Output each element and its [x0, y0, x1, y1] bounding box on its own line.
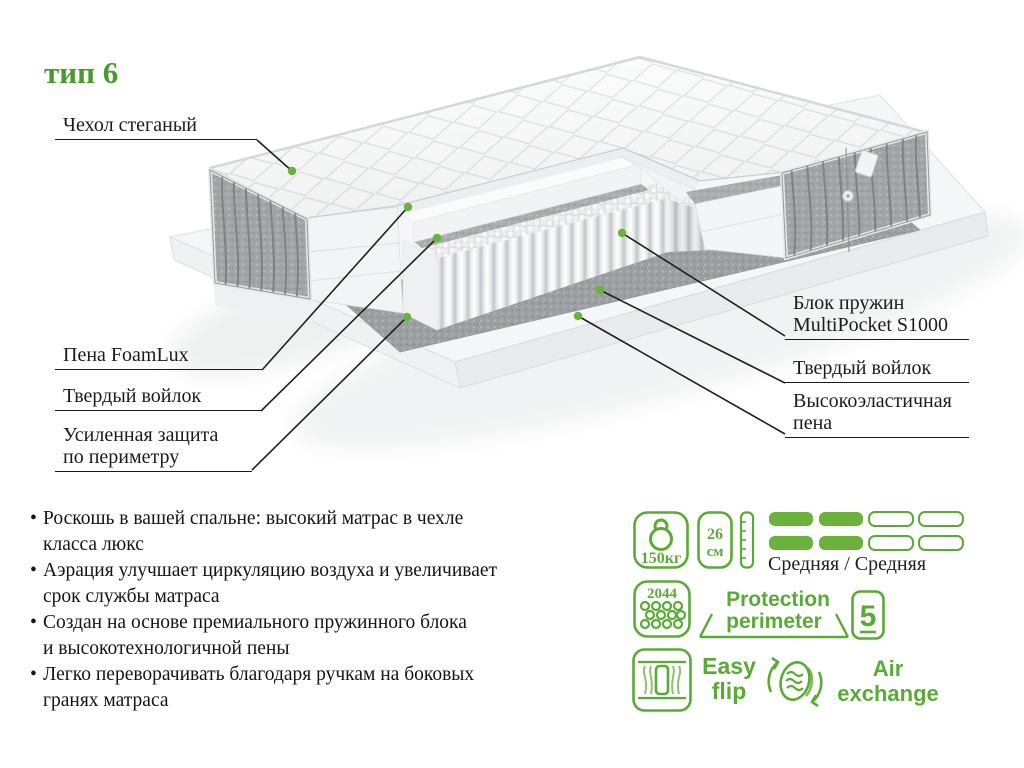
- easy-flip-icon: [632, 648, 692, 717]
- air-waves: [786, 672, 803, 690]
- callout-quilted-cover: Чехол стеганый: [55, 114, 257, 140]
- firmness-bars-filled: [769, 512, 863, 550]
- flip-handle: [656, 666, 668, 694]
- flip-waves: [644, 666, 680, 694]
- air-vent-button: [843, 191, 854, 202]
- firmness-bars-empty: [869, 512, 963, 550]
- svg-text:Protection: Protection: [726, 588, 830, 611]
- callout-perimeter: Усиленная защита по периметру: [55, 424, 252, 472]
- springs-count-icon: 2044: [633, 580, 691, 643]
- feature-item: • Создан на основе премиального пружинно…: [30, 610, 615, 662]
- feature-list: • Роскошь в вашей спальне: высокий матра…: [30, 506, 615, 714]
- feature-item: • Легко переворачивать благодаря ручкам …: [30, 662, 615, 714]
- feature-item: • Роскошь в вашей спальне: высокий матра…: [30, 506, 615, 558]
- ruler-icon: [739, 511, 757, 574]
- svg-text:26: 26: [707, 526, 723, 543]
- spring-dots: [641, 602, 685, 628]
- feature-item: • Аэрация улучшает циркуляцию воздуха и …: [30, 558, 615, 610]
- page-title: тип 6: [44, 56, 118, 90]
- svg-text:5: 5: [860, 600, 877, 633]
- callout-felt-left: Твердый войлок: [55, 385, 261, 411]
- callout-felt-right: Твердый войлок: [785, 357, 969, 383]
- svg-text:150кг: 150кг: [641, 550, 681, 567]
- max-weight-icon: 150кг: [633, 511, 689, 574]
- svg-text:2044: 2044: [647, 586, 678, 602]
- air-exchange-icon: [762, 650, 828, 719]
- svg-text:см: см: [707, 544, 724, 560]
- zones-icon: 5: [851, 590, 885, 647]
- mattress-infographic: тип 6 Чехол стеганый Пена FoamLux Тверды…: [0, 0, 1024, 768]
- firmness-label: Средняя / Средняя: [768, 552, 978, 576]
- firmness-scale: [768, 511, 972, 556]
- air-exchange-label: Air exchange: [832, 656, 944, 706]
- height-icon: 26 см: [697, 511, 733, 574]
- kettlebell-body: [651, 529, 672, 550]
- callout-springs: Блок пружин MultiPocket S1000: [785, 292, 969, 340]
- protection-perimeter-badge: Protection perimeter: [698, 588, 850, 647]
- easy-flip-label: Easy flip: [698, 654, 760, 704]
- svg-text:perimeter: perimeter: [726, 610, 822, 633]
- callout-elastic-foam: Высокоэластичная пена: [785, 390, 969, 438]
- callout-foamlux: Пена FoamLux: [55, 344, 262, 370]
